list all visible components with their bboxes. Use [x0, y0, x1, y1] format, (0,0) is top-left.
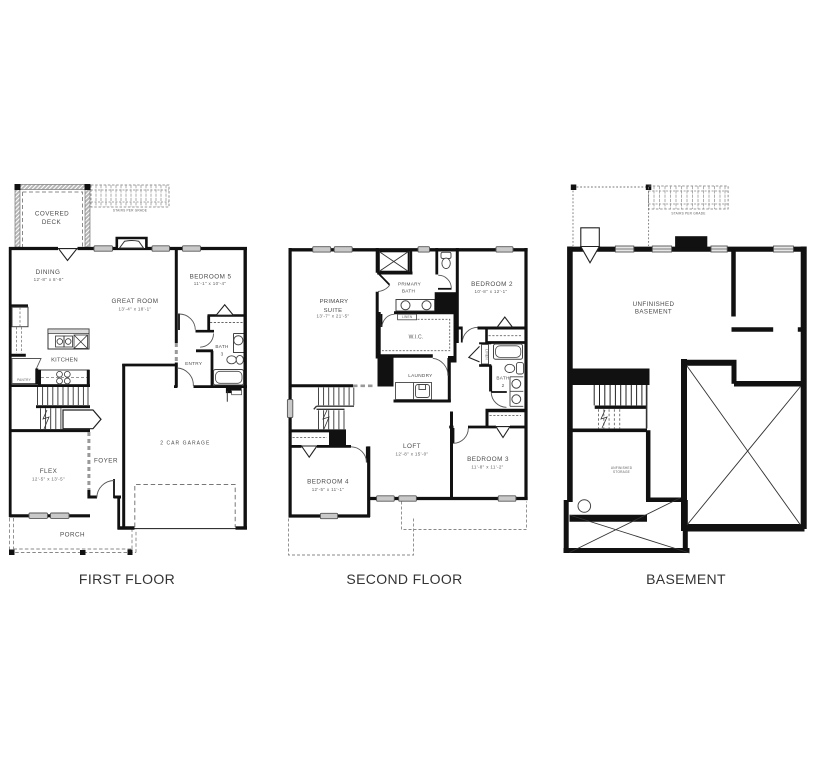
svg-text:13'-7" x 21'-5": 13'-7" x 21'-5" — [317, 314, 350, 319]
svg-text:SECOND FLOOR: SECOND FLOOR — [346, 571, 462, 587]
svg-text:2: 2 — [502, 383, 505, 388]
svg-text:STAIRS PER GRADE: STAIRS PER GRADE — [113, 209, 147, 213]
svg-text:PANTRY: PANTRY — [17, 378, 32, 382]
svg-text:LOFT: LOFT — [403, 443, 421, 450]
svg-text:BASEMENT: BASEMENT — [635, 309, 672, 316]
svg-text:DINING: DINING — [36, 269, 61, 276]
svg-text:DECK: DECK — [42, 219, 62, 226]
svg-text:W.I.C.: W.I.C. — [409, 334, 424, 340]
svg-text:ENTRY: ENTRY — [185, 361, 203, 366]
svg-text:PRIMARY: PRIMARY — [398, 282, 422, 287]
svg-text:10'-8" x 12'-1": 10'-8" x 12'-1" — [475, 289, 508, 294]
svg-text:FIRST FLOOR: FIRST FLOOR — [79, 571, 175, 587]
svg-text:LINEN: LINEN — [402, 315, 413, 319]
svg-text:STAIRS PER GRADE: STAIRS PER GRADE — [671, 212, 705, 216]
svg-text:BASEMENT: BASEMENT — [646, 571, 726, 587]
svg-text:BATH: BATH — [402, 289, 415, 294]
svg-text:3: 3 — [221, 351, 224, 356]
svg-text:BEDROOM 4: BEDROOM 4 — [307, 478, 349, 485]
svg-text:STORAGE: STORAGE — [613, 470, 630, 474]
svg-text:BEDROOM 2: BEDROOM 2 — [471, 281, 513, 288]
svg-text:13'-4" x 18'-1": 13'-4" x 18'-1" — [119, 307, 152, 312]
svg-text:11'-8" x 11'-2": 11'-8" x 11'-2" — [471, 465, 503, 470]
svg-text:FOYER: FOYER — [94, 458, 118, 465]
svg-text:KITCHEN: KITCHEN — [51, 357, 78, 363]
svg-text:LINEN: LINEN — [484, 349, 488, 360]
svg-text:11'-1" x 10'-4": 11'-1" x 10'-4" — [194, 281, 227, 286]
svg-text:BEDROOM 3: BEDROOM 3 — [467, 456, 509, 463]
svg-text:UNFINISHED: UNFINISHED — [633, 301, 675, 308]
svg-text:BEDROOM 5: BEDROOM 5 — [190, 274, 232, 281]
svg-text:PORCH: PORCH — [60, 532, 85, 539]
svg-text:UNFINISHED: UNFINISHED — [611, 466, 633, 470]
svg-text:BATH: BATH — [215, 344, 228, 349]
svg-text:FLEX: FLEX — [40, 468, 58, 475]
svg-text:2 CAR GARAGE: 2 CAR GARAGE — [160, 440, 210, 446]
svg-text:COVERED: COVERED — [35, 211, 69, 218]
svg-text:12'-5" x 13'-5": 12'-5" x 13'-5" — [32, 477, 65, 482]
svg-text:12'-8" x 15'-0": 12'-8" x 15'-0" — [396, 452, 429, 457]
svg-text:GREAT ROOM: GREAT ROOM — [112, 298, 159, 305]
svg-text:LAUNDRY: LAUNDRY — [408, 373, 433, 378]
svg-text:12'-5" x 11'-1": 12'-5" x 11'-1" — [312, 487, 345, 492]
svg-text:BATH: BATH — [496, 375, 509, 380]
svg-text:PRIMARY: PRIMARY — [320, 299, 349, 305]
svg-text:12'-8" x 8'-8": 12'-8" x 8'-8" — [34, 277, 64, 282]
